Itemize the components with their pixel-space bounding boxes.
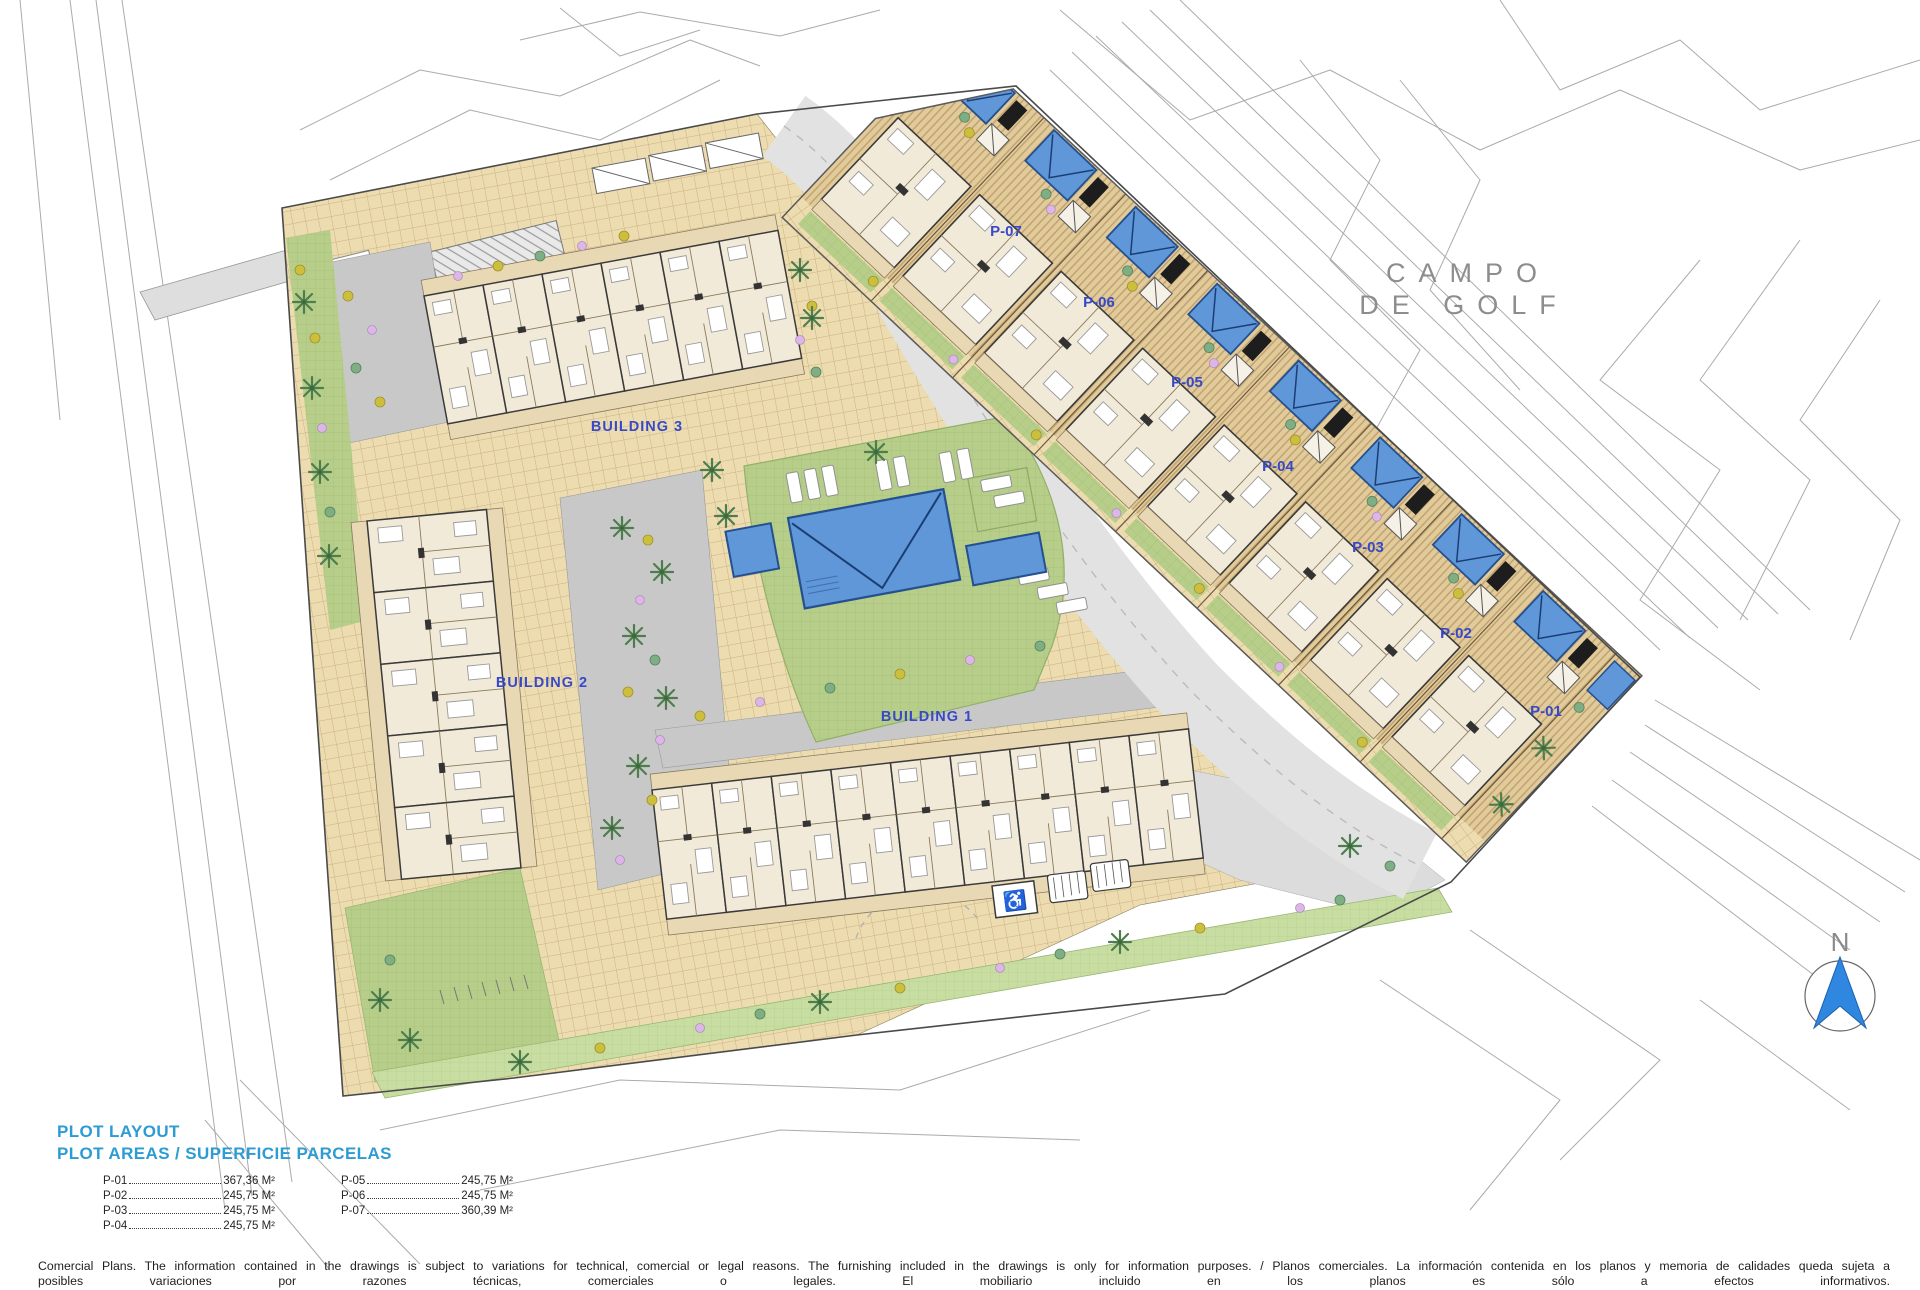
- dot-leader: [129, 1198, 221, 1199]
- building-3-label: BUILDING 3: [591, 419, 683, 435]
- legend-row-p05: P-05245,75 M²: [341, 1175, 513, 1187]
- plot-area-value: 245,75 M²: [223, 1205, 275, 1217]
- plot-label-p04: P-04: [1262, 458, 1294, 475]
- legend-row-p04: P-04245,75 M²: [103, 1220, 275, 1232]
- golf-course-label-line1: CAMPO: [1386, 258, 1550, 288]
- legend-row-p03: P-03245,75 M²: [103, 1205, 275, 1217]
- legend-row-p06: P-06245,75 M²: [341, 1190, 513, 1202]
- plot-id: P-07: [341, 1205, 365, 1217]
- disclaimer: Comercial Plans. The information contain…: [38, 1259, 1890, 1290]
- disclaimer-line-1: Comercial Plans. The information contain…: [38, 1259, 1890, 1274]
- plot-label-p03: P-03: [1352, 539, 1384, 556]
- dot-leader: [367, 1183, 459, 1184]
- plot-label-p06: P-06: [1083, 294, 1115, 311]
- plunge-pool: [725, 523, 779, 577]
- disclaimer-line-2: posibles variaciones por razones técnica…: [38, 1274, 1890, 1289]
- legend-row-p07: P-07360,39 M²: [341, 1205, 513, 1217]
- wheelchair-icon: ♿: [1002, 888, 1028, 914]
- plot-id: P-01: [103, 1175, 127, 1187]
- plot-label-p05: P-05: [1171, 374, 1203, 391]
- dot-leader: [367, 1198, 459, 1199]
- building-1-label: BUILDING 1: [881, 709, 973, 725]
- plot-area-value: 360,39 M²: [461, 1205, 513, 1217]
- plot-id: P-02: [103, 1190, 127, 1202]
- plot-id: P-04: [103, 1220, 127, 1232]
- legend-row-p01: P-01367,36 M²: [103, 1175, 275, 1187]
- plot-area-value: 367,36 M²: [223, 1175, 275, 1187]
- legend-subtitle: PLOT AREAS / SUPERFICIE PARCELAS: [57, 1143, 513, 1165]
- plot-id: P-06: [341, 1190, 365, 1202]
- legend-title: PLOT LAYOUT: [57, 1121, 513, 1143]
- plot-area-value: 245,75 M²: [223, 1190, 275, 1202]
- site-plan-page: { "plan": { "area_label": { "line1": "CA…: [0, 0, 1920, 1280]
- plot-area-value: 245,75 M²: [223, 1220, 275, 1232]
- legend-row-p02: P-02245,75 M²: [103, 1190, 275, 1202]
- plot-legend: PLOT LAYOUT PLOT AREAS / SUPERFICIE PARC…: [57, 1121, 513, 1232]
- dot-leader: [129, 1213, 221, 1214]
- plot-id: P-05: [341, 1175, 365, 1187]
- plot-label-p02: P-02: [1440, 625, 1472, 642]
- plot-area-value: 245,75 M²: [461, 1175, 513, 1187]
- dot-leader: [129, 1228, 221, 1229]
- site-plan-drawing: ♿: [0, 0, 1920, 1280]
- dot-leader: [129, 1183, 221, 1184]
- plot-area-value: 245,75 M²: [461, 1190, 513, 1202]
- legend-column-1: P-01367,36 M² P-02245,75 M² P-03245,75 M…: [103, 1175, 275, 1232]
- plot-label-p07: P-07: [990, 223, 1022, 240]
- dot-leader: [367, 1213, 459, 1214]
- north-label: N: [1831, 927, 1850, 957]
- golf-course-label-line2: DE GOLF: [1359, 290, 1569, 320]
- building-2-label: BUILDING 2: [496, 675, 588, 691]
- bin-store: [1047, 871, 1088, 903]
- bin-store: [1090, 859, 1131, 891]
- plot-label-p01: P-01: [1530, 703, 1562, 720]
- plot-id: P-03: [103, 1205, 127, 1217]
- legend-column-2: P-05245,75 M² P-06245,75 M² P-07360,39 M…: [341, 1175, 513, 1232]
